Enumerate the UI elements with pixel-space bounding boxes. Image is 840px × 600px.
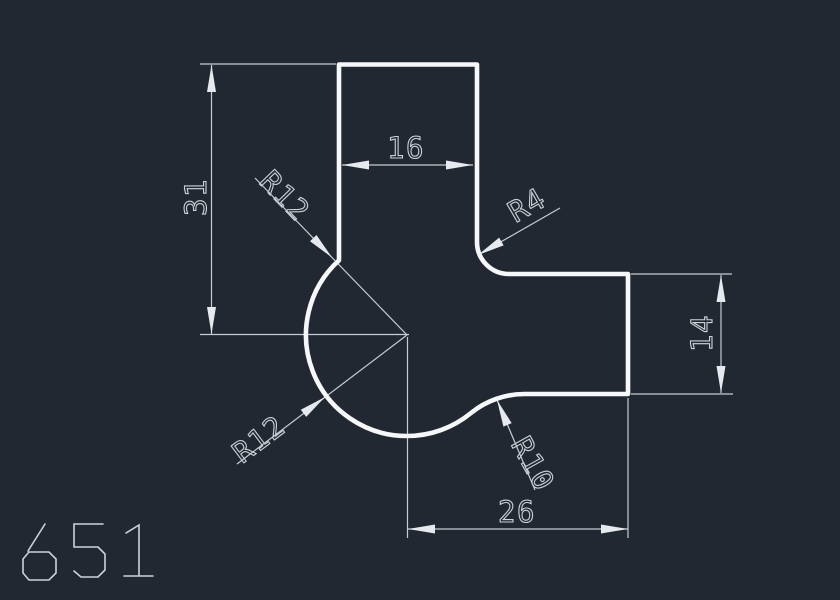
radius-text-r10[interactable]: R10 [504, 431, 561, 497]
dimension-texts: 31 16 14 26 R12 R4 R10 R12 [179, 131, 719, 529]
part-number-digit [23, 524, 56, 580]
dim-text-14[interactable]: 14 [685, 314, 719, 352]
arrowhead-icon [717, 275, 726, 302]
arrowhead-icon [301, 397, 325, 417]
arrowhead-icon [408, 525, 435, 534]
arrowhead-icon [342, 161, 369, 170]
dim-text-31[interactable]: 31 [179, 178, 213, 216]
arrowhead-icon [207, 307, 216, 334]
part-number-digit [74, 524, 105, 577]
cad-viewport[interactable]: 31 16 14 26 R12 R4 R10 R12 [0, 0, 840, 600]
dim-text-16[interactable]: 16 [387, 131, 425, 165]
radius-text-r4[interactable]: R4 [502, 181, 552, 229]
radius-text-r12-upper[interactable]: R12 [253, 164, 317, 229]
part-number-digit [124, 525, 153, 576]
radius-text-r12-lower[interactable]: R12 [226, 408, 292, 469]
dim-text-26[interactable]: 26 [498, 495, 536, 529]
dimension-arrowheads [207, 65, 726, 534]
part-number[interactable] [23, 524, 153, 580]
part-profile-outline[interactable] [306, 65, 628, 437]
arrowhead-icon [497, 400, 512, 427]
arrowhead-icon [446, 161, 473, 170]
arrowhead-icon [310, 235, 332, 258]
arrowhead-icon [717, 366, 726, 393]
cad-drawing-canvas[interactable]: 31 16 14 26 R12 R4 R10 R12 [0, 0, 840, 600]
dimension-lines [200, 64, 733, 538]
arrowhead-icon [601, 525, 628, 534]
arrowhead-icon [207, 65, 216, 92]
arrowhead-icon [478, 238, 504, 255]
